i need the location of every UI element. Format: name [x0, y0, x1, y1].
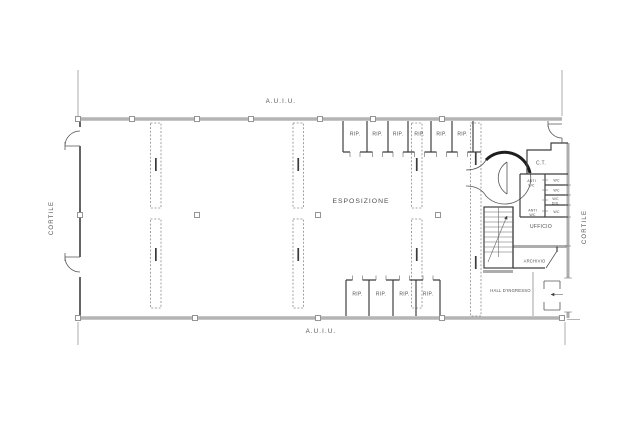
- room-label-rip-bottom-2: RIP.: [376, 292, 386, 298]
- floor-plan-page: RIP. RIP. RIP. RIP. RIP. RIP. RIP. RIP. …: [0, 0, 640, 427]
- room-label-ct: C.T.: [536, 161, 546, 167]
- staircase: [484, 207, 513, 268]
- shutter-strip-micro-text: [155, 152, 477, 269]
- service-rooms: C.T. ANTI WC WC WC WC DIS. ANTI WC WC: [520, 143, 571, 246]
- label-auiu-bottom: A.U.I.U.: [306, 329, 337, 335]
- room-label-antiwc-top-2: WC: [528, 184, 534, 188]
- room-label-wcdis-2: DIS.: [552, 201, 559, 205]
- room-label-wc-1: WC: [553, 179, 559, 183]
- room-label-rip-top-5: RIP.: [436, 132, 446, 138]
- room-label-rip-top-2: RIP.: [372, 132, 382, 138]
- room-label-antiwc-bottom-2: WC: [529, 213, 535, 217]
- label-cortile-right: CORTILE: [582, 210, 588, 244]
- room-label-wc-3: WC: [553, 210, 559, 214]
- room-label-entrance-hall: HALL D'INGRESSO: [490, 288, 531, 293]
- room-label-rip-bottom-4: RIP.: [423, 292, 433, 298]
- room-label-antiwc-top-1: ANTI: [527, 179, 536, 183]
- storage-rooms-bottom: RIP. RIP. RIP. RIP.: [346, 276, 440, 317]
- storage-rooms-top: RIP. RIP. RIP. RIP. RIP. RIP.: [343, 121, 481, 157]
- room-label-rip-bottom-3: RIP.: [399, 292, 409, 298]
- door-swings: [65, 121, 562, 272]
- room-label-rip-top-4: RIP.: [414, 132, 424, 138]
- floor-plan-drawing: RIP. RIP. RIP. RIP. RIP. RIP. RIP. RIP. …: [0, 0, 640, 427]
- room-label-office: UFFICIO: [530, 224, 552, 230]
- label-cortile-left: CORTILE: [49, 201, 55, 235]
- room-label-rip-top-1: RIP.: [350, 132, 360, 138]
- entrance-door: [544, 278, 572, 312]
- room-label-rip-top-6: RIP.: [457, 132, 467, 138]
- room-label-archive: ARCHIVIO: [524, 259, 546, 264]
- label-auiu-top: A.U.I.U.: [266, 99, 297, 105]
- room-label-exhibition: ESPOSIZIONE: [332, 198, 389, 205]
- office-archive-hall: UFFICIO ARCHIVIO HALL D'INGRESSO: [490, 207, 557, 316]
- room-label-rip-bottom-1: RIP.: [352, 292, 362, 298]
- room-label-rip-top-3: RIP.: [393, 132, 403, 138]
- room-label-wc-2: WC: [553, 189, 559, 193]
